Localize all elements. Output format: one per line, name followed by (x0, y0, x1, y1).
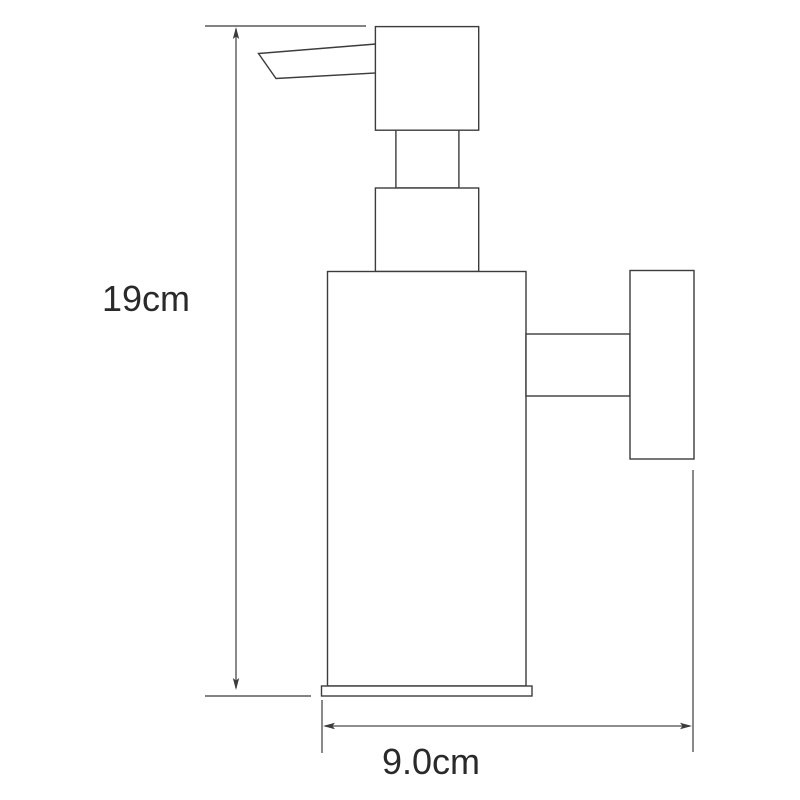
svg-text:19cm: 19cm (102, 278, 190, 319)
svg-text:9.0cm: 9.0cm (382, 741, 480, 782)
